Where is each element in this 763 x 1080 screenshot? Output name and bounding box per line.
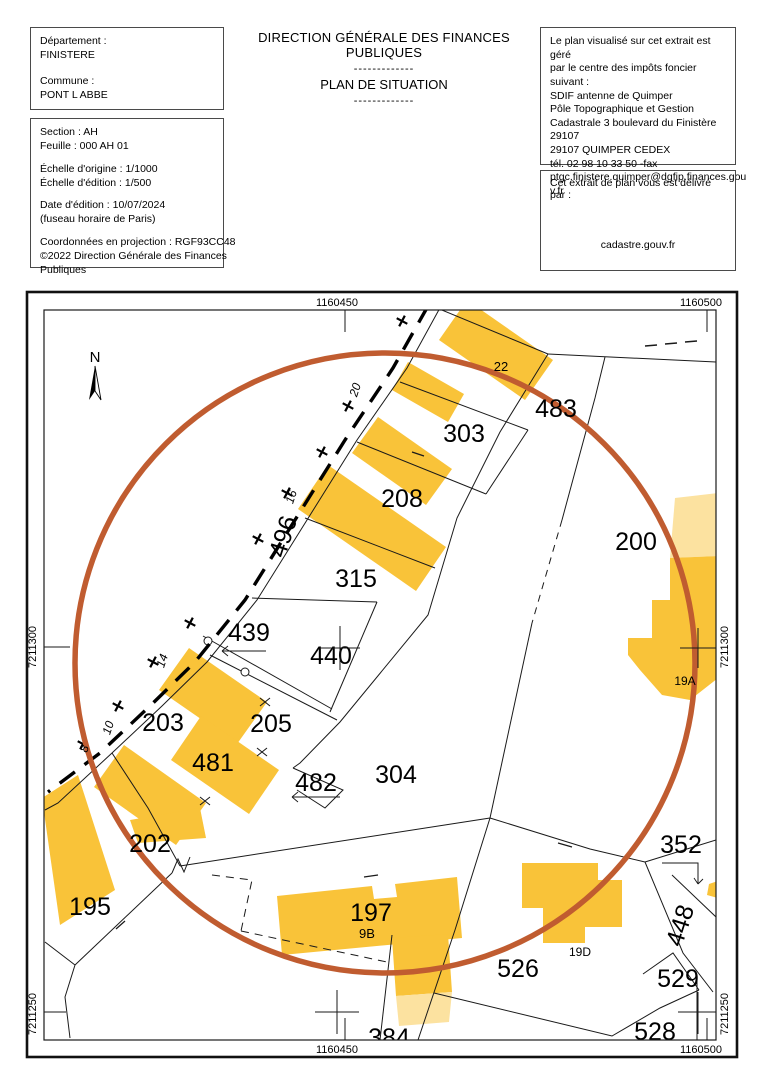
sheet-info-box: Section : AH Feuille : 000 AH 01 Échelle…	[30, 118, 224, 268]
north-label: N	[90, 349, 101, 366]
separator-dashes-2: -------------	[226, 95, 542, 107]
cadastre-plan-page: Département : FINISTERE Commune : PONT L…	[0, 0, 763, 1080]
section: Section : AH	[40, 126, 214, 140]
plan-title: PLAN DE SITUATION	[226, 77, 542, 92]
echelle-edition: Échelle d'édition : 1/500	[40, 177, 214, 191]
center-line-6: 29107	[550, 130, 726, 144]
center-line-7: 29107 QUIMPER CEDEX	[550, 144, 726, 158]
delivery-provider: cadastre.gouv.fr	[550, 239, 726, 251]
dept-value: FINISTERE	[40, 49, 214, 63]
parcel-label-482: 482	[295, 769, 337, 797]
main-title: DIRECTION GÉNÉRALE DES FINANCES PUBLIQUE…	[226, 30, 542, 60]
echelle-origine: Échelle d'origine : 1/1000	[40, 163, 214, 177]
date-edition: Date d'édition : 10/07/2024	[40, 199, 214, 213]
center-line-3: SDIF antenne de Quimper	[550, 90, 726, 104]
parcel-label-303: 303	[443, 420, 485, 448]
dept-label: Département :	[40, 35, 214, 49]
delivery-label: Cet extrait de plan vous est délivré par…	[550, 177, 726, 201]
building-label-9B: 9B	[359, 926, 375, 941]
parcel-label-208: 208	[381, 485, 423, 513]
parcel-label-203: 203	[142, 709, 184, 737]
parcel-label-529: 529	[657, 965, 699, 993]
parcel-label-202: 202	[129, 830, 171, 858]
title-block: DIRECTION GÉNÉRALE DES FINANCES PUBLIQUE…	[226, 30, 542, 109]
commune-value: PONT L ABBE	[40, 89, 214, 103]
delivery-box: Cet extrait de plan vous est délivré par…	[540, 170, 736, 271]
parcel-label-197: 197	[350, 899, 392, 927]
grid-right-top: 7211300	[719, 626, 731, 668]
parcel-label-483: 483	[535, 395, 577, 423]
grid-top-right: 1160500	[680, 297, 722, 309]
parcel-label-205: 205	[250, 710, 292, 738]
parcel-label-352: 352	[660, 831, 702, 859]
grid-bottom-left: 1160450	[316, 1044, 358, 1056]
parcel-label-315: 315	[335, 565, 377, 593]
building-200-light	[670, 493, 718, 558]
fuseau: (fuseau horaire de Paris)	[40, 213, 214, 227]
separator-dashes-1: -------------	[226, 63, 542, 75]
building-label-22: 22	[494, 359, 508, 374]
parcel-label-200: 200	[615, 528, 657, 556]
feuille: Feuille : 000 AH 01	[40, 140, 214, 154]
copyright-2: Publiques	[40, 264, 214, 278]
grid-top-left: 1160450	[316, 297, 358, 309]
parcel-label-526: 526	[497, 955, 539, 983]
cadastral-map: 483 303 208 315 439 440 203 205 481 482 …	[25, 290, 740, 1060]
parcel-label-481: 481	[192, 749, 234, 777]
copyright-1: ©2022 Direction Générale des Finances	[40, 250, 214, 264]
tax-center-box: Le plan visualisé sur cet extrait est gé…	[540, 27, 736, 165]
center-line-5: Cadastrale 3 boulevard du Finistère	[550, 117, 726, 131]
grid-right-bottom: 7211250	[719, 993, 731, 1035]
building-label-19A: 19A	[674, 674, 695, 688]
parcel-label-304: 304	[375, 761, 417, 789]
center-line-2: par le centre des impôts foncier suivant…	[550, 62, 726, 89]
center-line-4: Pôle Topographique et Gestion	[550, 103, 726, 117]
parcel-label-439: 439	[228, 619, 270, 647]
center-line-1: Le plan visualisé sur cet extrait est gé…	[550, 35, 726, 62]
grid-bottom-right: 1160500	[680, 1044, 722, 1056]
parcel-label-195: 195	[69, 893, 111, 921]
grid-left-bottom: 7211250	[27, 993, 39, 1035]
coordonnees: Coordonnées en projection : RGF93CC48	[40, 236, 214, 250]
parcel-label-440: 440	[310, 642, 352, 670]
building-label-19D: 19D	[569, 945, 591, 959]
grid-left-top: 7211300	[27, 626, 39, 668]
department-commune-box: Département : FINISTERE Commune : PONT L…	[30, 27, 224, 110]
commune-label: Commune :	[40, 75, 214, 89]
